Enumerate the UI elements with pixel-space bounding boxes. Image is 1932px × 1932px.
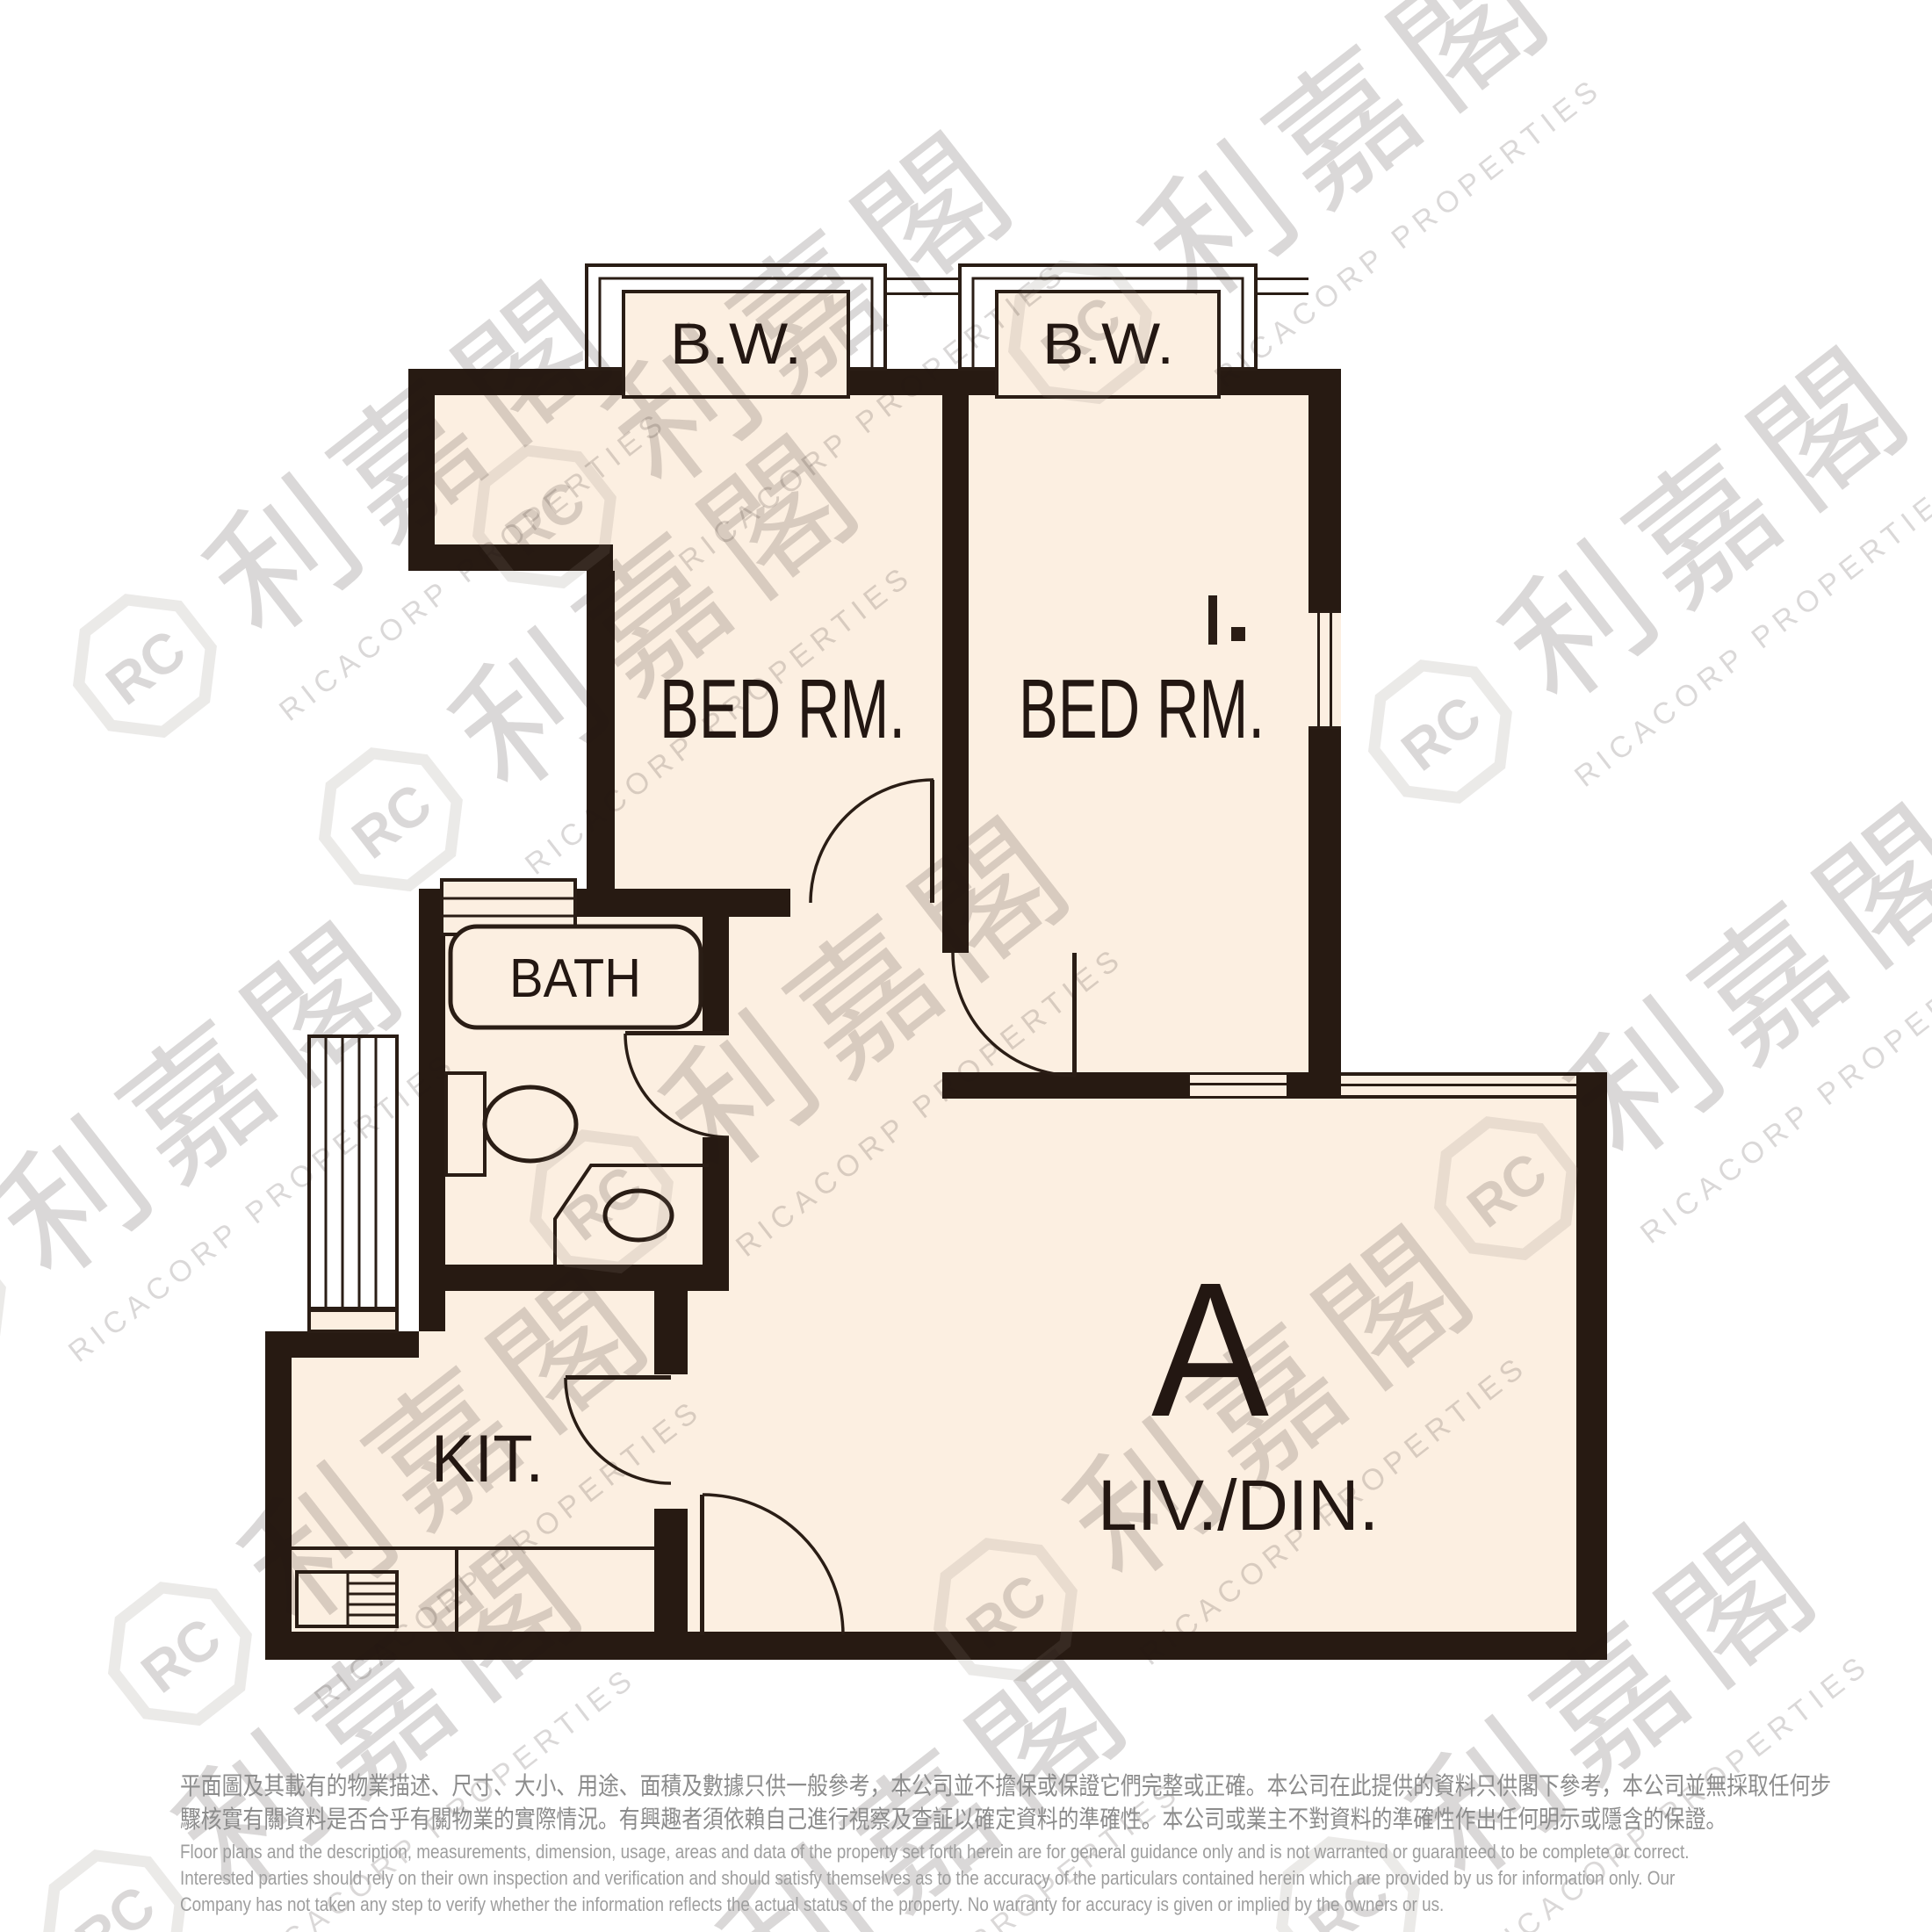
watermark-monogram: RC bbox=[1390, 683, 1493, 783]
watermark-cjk-text: 利嘉閣 bbox=[1542, 771, 1932, 1187]
watermark-monogram: RC bbox=[95, 617, 198, 717]
wall-bed2-bottom-right bbox=[1287, 1072, 1341, 1099]
wall-bed2-east-upper bbox=[1308, 369, 1341, 610]
watermark: RC利嘉閣RICACORP PROPERTIES bbox=[1344, 314, 1932, 881]
watermark-monogram: RC bbox=[130, 1605, 233, 1705]
bedroom2-label: BED RM. bbox=[1019, 662, 1265, 756]
watermark: RC利嘉閣RICACORP PROPERTIES bbox=[1409, 771, 1932, 1337]
wall-living-east bbox=[1576, 1072, 1607, 1660]
disclaimer-zh-line1: 平面圖及其載有的物業描述、尺寸、大小、用途、面積及數據只供一般參考，本公司並不擔… bbox=[180, 1767, 1831, 1802]
wall-bed2-east-lower bbox=[1308, 729, 1341, 1099]
floorplan-drawing: B.W. B.W. BED RM. BED RM. BATH KIT. A LI… bbox=[0, 0, 1932, 1932]
floorplan-page: B.W. B.W. BED RM. BED RM. BATH KIT. A LI… bbox=[0, 0, 1932, 1932]
disclaimer-en-line2: Interested parties should rely on their … bbox=[180, 1867, 1675, 1890]
disclaimer-en-line3: Company has not taken any step to verify… bbox=[180, 1893, 1444, 1916]
watermark-monogram: RC bbox=[341, 771, 443, 871]
bath-label: BATH bbox=[509, 948, 641, 1009]
wall-northwest bbox=[265, 1331, 419, 1358]
disclaimer-zh-line2: 驟核實有關資料是否合乎有關物業的實際情況。有興趣者須依賴自己進行視察及查証以確定… bbox=[180, 1800, 1727, 1835]
watermark-monogram: RC bbox=[64, 1873, 167, 1932]
disclaimer-en-line1: Floor plans and the description, measure… bbox=[180, 1841, 1690, 1864]
wall-kitchen-east-lower bbox=[654, 1509, 688, 1632]
